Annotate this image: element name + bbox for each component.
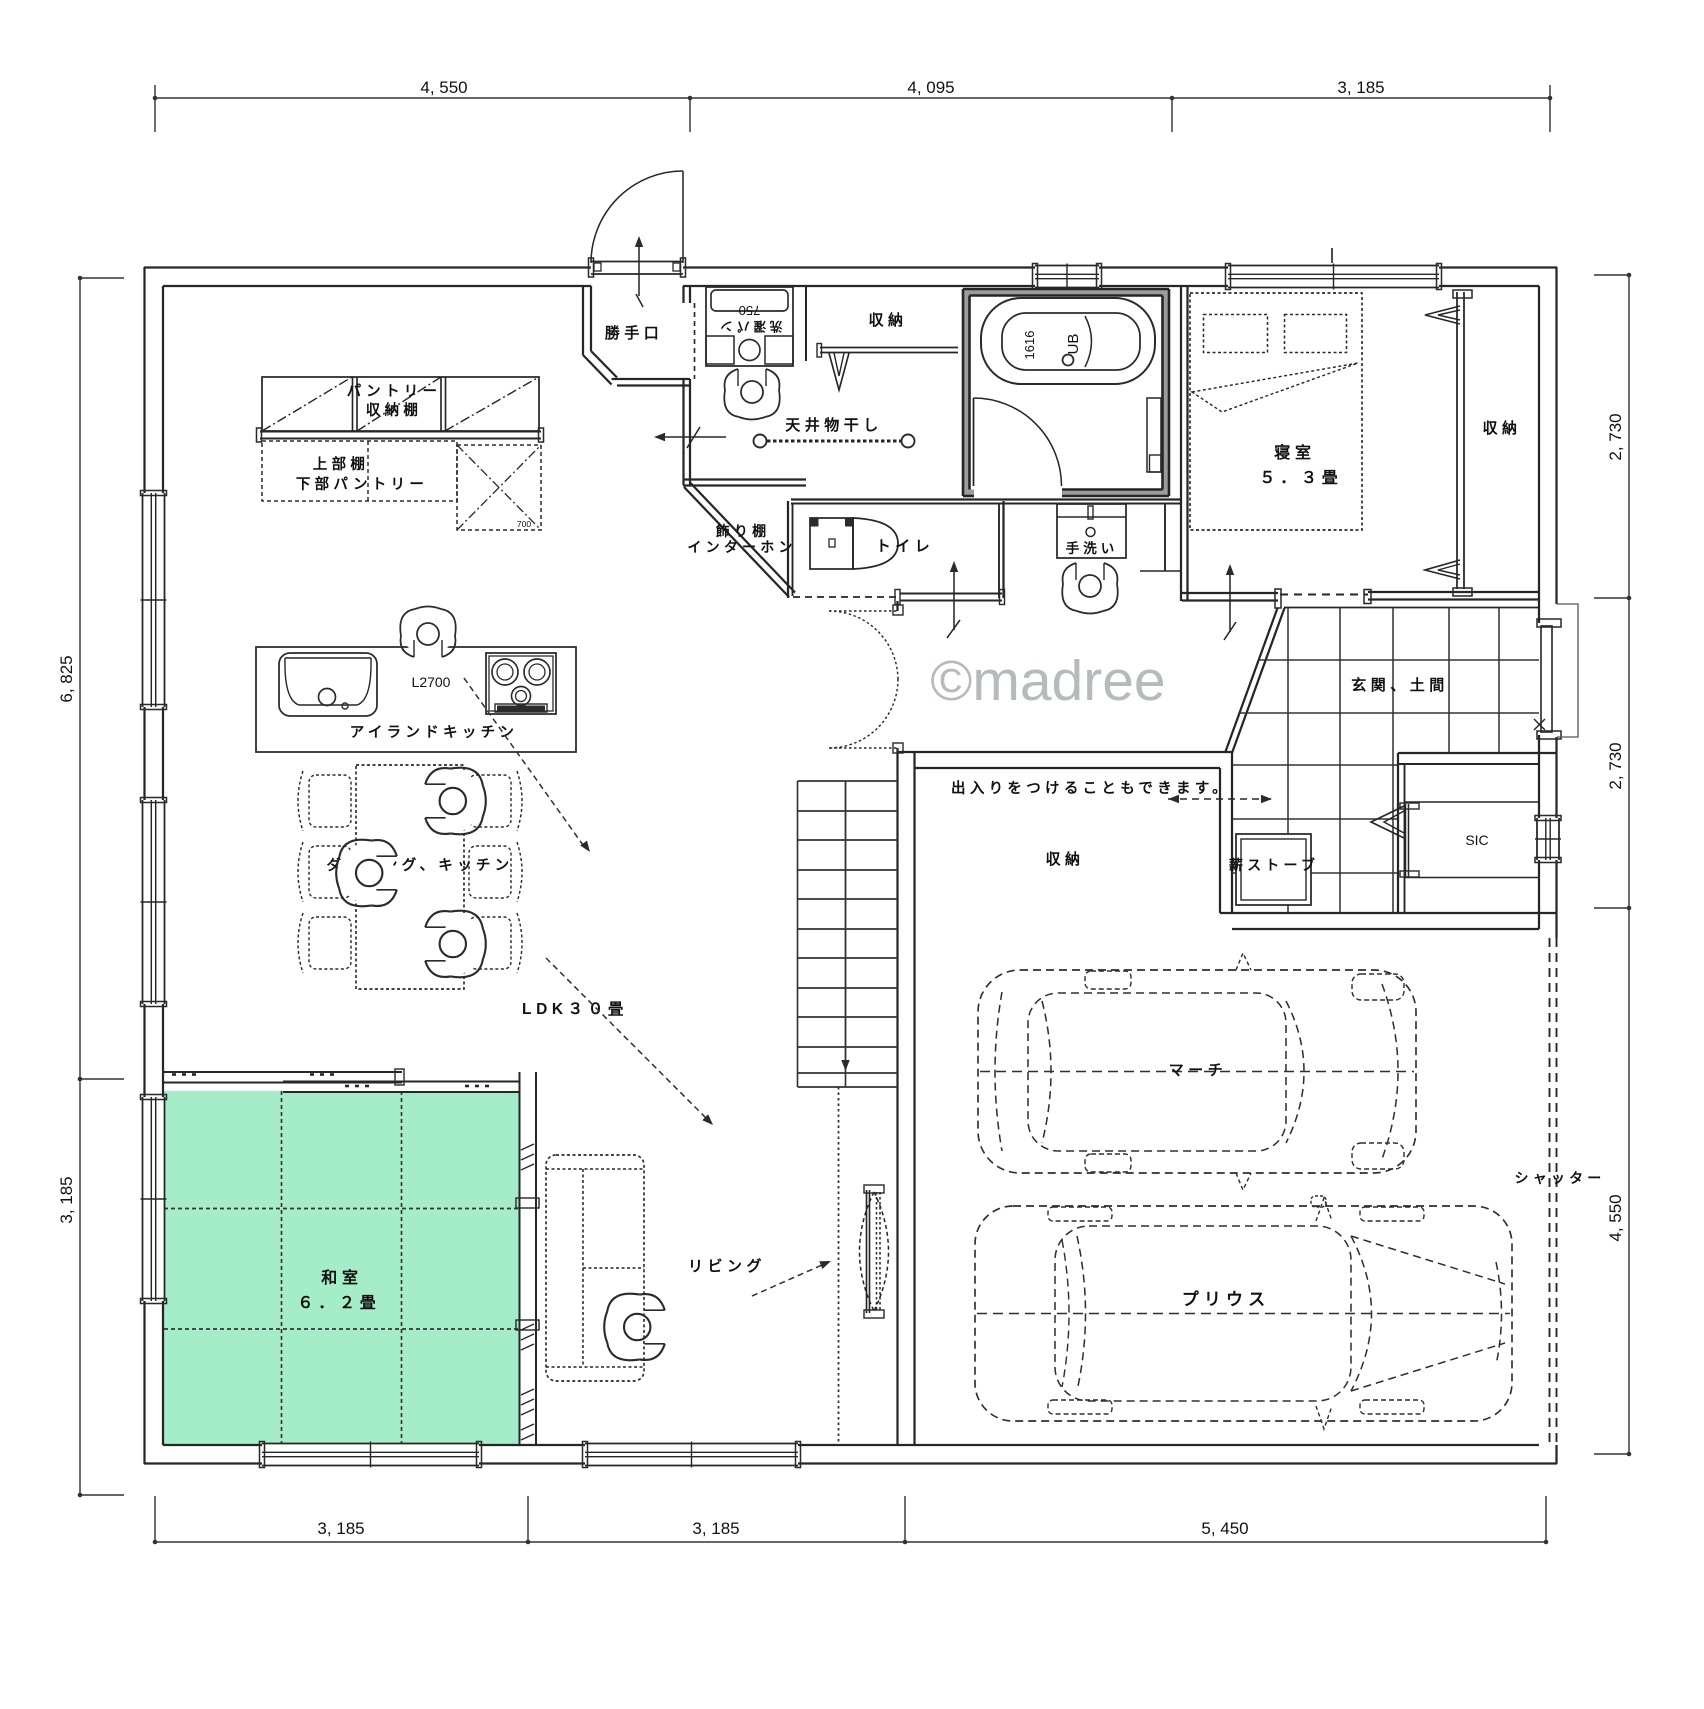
svg-text:プリウス: プリウス xyxy=(1182,1289,1270,1309)
svg-text:1616: 1616 xyxy=(1022,331,1037,360)
svg-text:アイランドキッチン: アイランドキッチン xyxy=(350,724,518,741)
svg-text:700: 700 xyxy=(517,519,531,529)
svg-text:3, 185: 3, 185 xyxy=(692,1519,739,1538)
svg-text:750: 750 xyxy=(739,303,761,318)
svg-text:パントリー: パントリー xyxy=(347,383,442,400)
svg-text:インターホン: インターホン xyxy=(687,539,796,555)
svg-text:手洗い: 手洗い xyxy=(1066,540,1119,556)
svg-text:和室: 和室 xyxy=(321,1268,363,1287)
svg-text:UB: UB xyxy=(1065,334,1082,355)
svg-text:6, 825: 6, 825 xyxy=(57,655,76,702)
svg-text:SIC: SIC xyxy=(1465,832,1488,848)
svg-text:トイレ: トイレ xyxy=(876,538,935,555)
svg-text:天井物干し: 天井物干し xyxy=(785,416,883,434)
svg-text:５．３畳: ５．３畳 xyxy=(1259,469,1342,487)
svg-text:収納: 収納 xyxy=(1482,419,1521,437)
svg-text:収納棚: 収納棚 xyxy=(366,401,422,419)
svg-text:収納: 収納 xyxy=(868,311,907,329)
svg-text:3, 185: 3, 185 xyxy=(317,1519,364,1538)
svg-text:LDK３０畳: LDK３０畳 xyxy=(522,1000,628,1018)
svg-text:3, 185: 3, 185 xyxy=(57,1176,76,1223)
svg-text:下部パントリー: 下部パントリー xyxy=(296,475,428,493)
svg-text:出入りをつけることもできます。: 出入りをつけることもできます。 xyxy=(951,779,1231,797)
svg-text:勝手口: 勝手口 xyxy=(605,324,664,342)
svg-text:薪ストーブ: 薪ストーブ xyxy=(1229,857,1319,873)
svg-text:4, 550: 4, 550 xyxy=(420,78,467,97)
svg-text:2, 730: 2, 730 xyxy=(1606,742,1625,789)
svg-text:収納: 収納 xyxy=(1045,850,1084,868)
svg-text:L2700: L2700 xyxy=(412,674,451,690)
svg-text:玄関、土間: 玄関、土間 xyxy=(1351,676,1449,694)
svg-text:2, 730: 2, 730 xyxy=(1606,413,1625,460)
svg-text:上部棚: 上部棚 xyxy=(313,455,369,473)
svg-text:4, 095: 4, 095 xyxy=(907,78,954,97)
svg-text:シャッター: シャッター xyxy=(1515,1170,1606,1186)
svg-text:3, 185: 3, 185 xyxy=(1337,78,1384,97)
svg-text:６．２畳: ６．２畳 xyxy=(297,1294,380,1312)
svg-text:©madree: ©madree xyxy=(930,649,1165,713)
svg-text:4, 550: 4, 550 xyxy=(1606,1194,1625,1241)
svg-text:飾り棚: 飾り棚 xyxy=(716,523,771,539)
svg-text:洗濯パン: 洗濯パン xyxy=(717,319,783,334)
svg-text:リビング: リビング xyxy=(688,1257,766,1275)
svg-text:寝室: 寝室 xyxy=(1274,443,1316,462)
svg-text:マーチ: マーチ xyxy=(1169,1062,1228,1079)
svg-text:5, 450: 5, 450 xyxy=(1201,1519,1248,1538)
